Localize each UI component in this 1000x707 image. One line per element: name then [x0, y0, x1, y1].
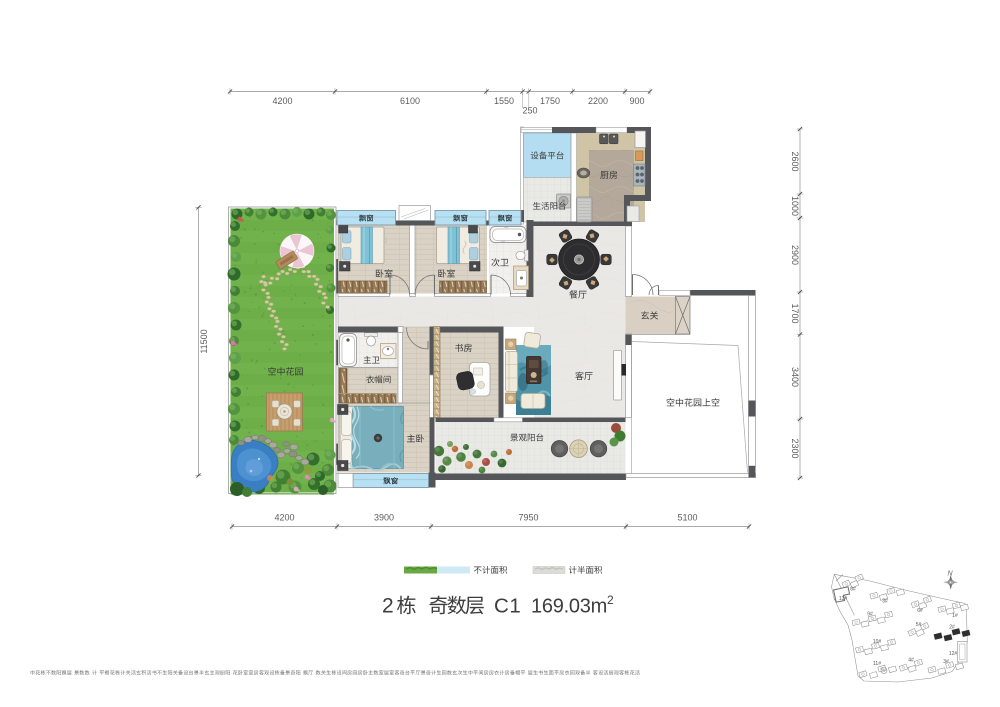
svg-text:2200: 2200 — [588, 96, 608, 106]
svg-text:1750: 1750 — [540, 96, 560, 106]
svg-text:5#: 5# — [916, 622, 922, 628]
svg-text:169.03m: 169.03m — [531, 595, 607, 617]
svg-text:250: 250 — [522, 106, 537, 116]
svg-text:1550: 1550 — [494, 96, 514, 106]
svg-text:6100: 6100 — [400, 96, 420, 106]
svg-text:4200: 4200 — [272, 96, 292, 106]
svg-text:3#: 3# — [882, 599, 888, 605]
svg-text:11500: 11500 — [199, 329, 209, 353]
svg-text:11#: 11# — [873, 661, 881, 667]
svg-text:3400: 3400 — [790, 367, 800, 387]
svg-text:1#: 1# — [952, 613, 958, 619]
svg-text:4200: 4200 — [274, 513, 294, 523]
svg-text:3#: 3# — [943, 659, 949, 665]
svg-text:4#: 4# — [908, 658, 914, 664]
svg-text:2600: 2600 — [790, 151, 800, 171]
svg-text:2: 2 — [382, 594, 394, 617]
svg-text:1700: 1700 — [790, 303, 800, 323]
svg-text:8#: 8# — [850, 587, 856, 593]
svg-text:10#: 10# — [873, 639, 882, 645]
svg-text:C1: C1 — [494, 594, 521, 617]
svg-text:2300: 2300 — [790, 438, 800, 458]
svg-text:3900: 3900 — [374, 513, 394, 523]
svg-text:12#: 12# — [949, 651, 958, 657]
svg-text:7950: 7950 — [518, 513, 538, 523]
svg-text:13#: 13# — [839, 596, 848, 602]
svg-text:2#: 2# — [949, 625, 955, 631]
svg-text:2900: 2900 — [790, 245, 800, 265]
svg-text:900: 900 — [629, 96, 644, 106]
svg-text:2: 2 — [607, 593, 614, 607]
svg-text:1000: 1000 — [790, 196, 800, 216]
svg-text:6#: 6# — [917, 608, 923, 614]
svg-text:9#: 9# — [867, 612, 873, 618]
svg-text:5100: 5100 — [677, 513, 697, 523]
